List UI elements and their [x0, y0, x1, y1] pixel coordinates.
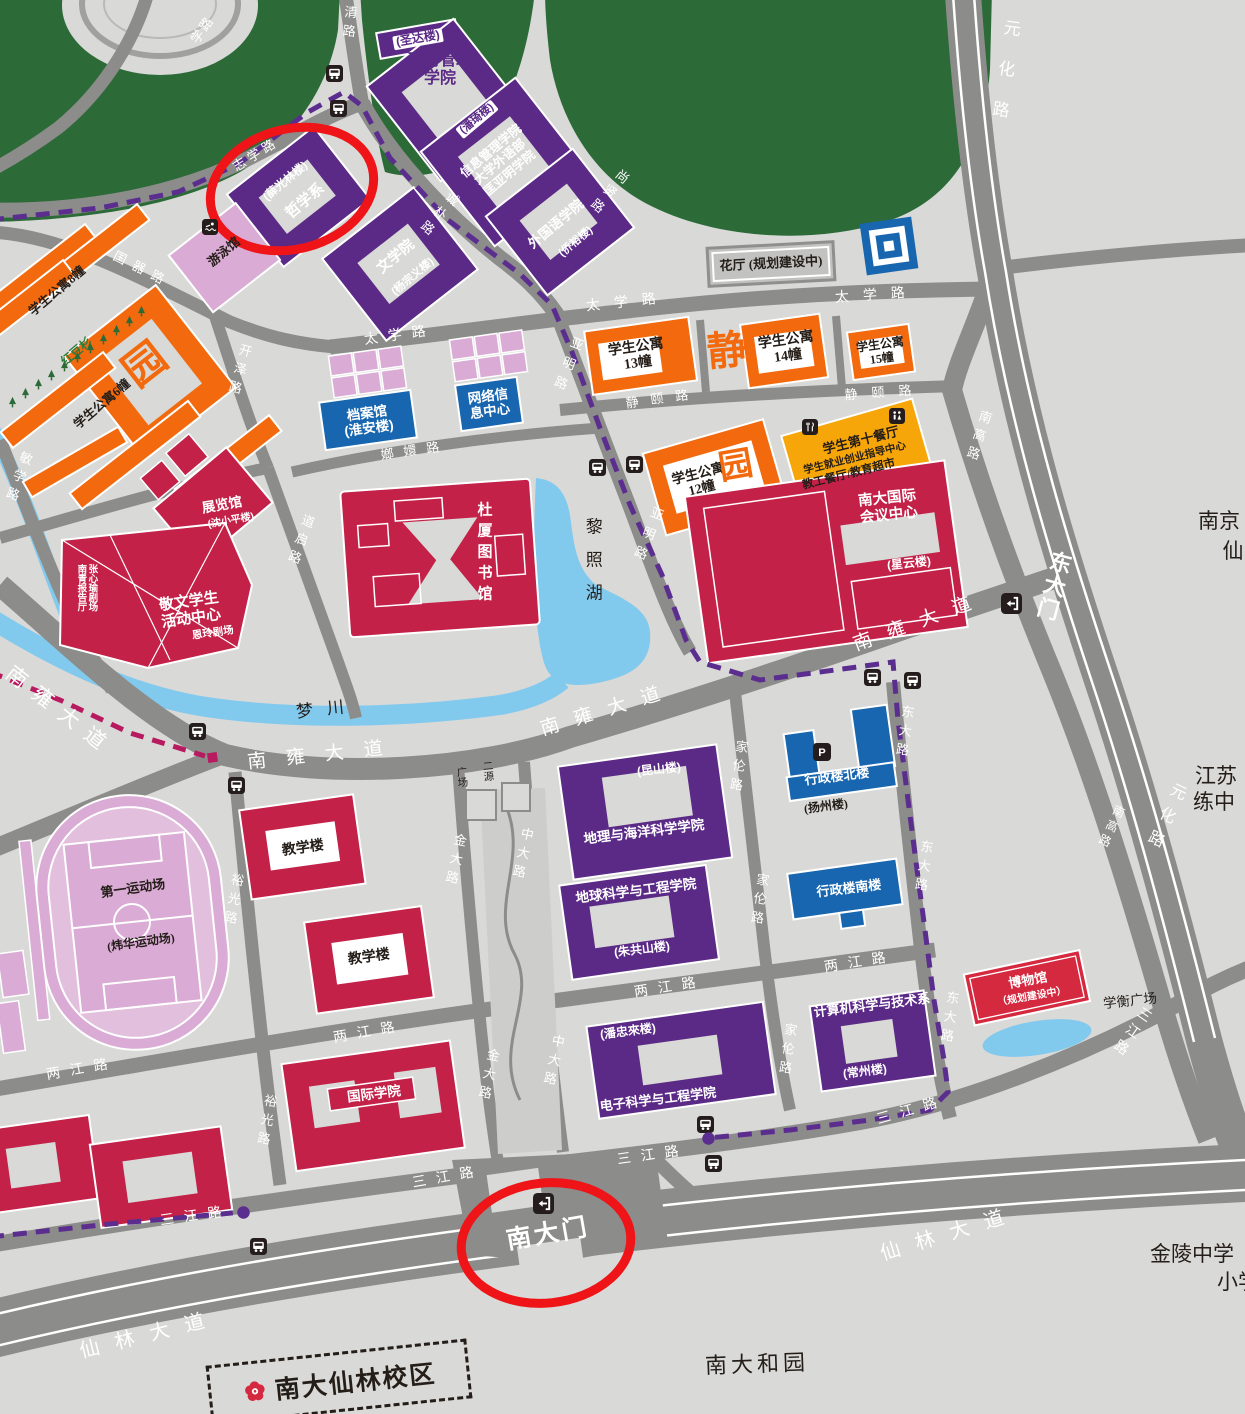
- geography-building: [558, 744, 732, 879]
- classroom-1-building: [239, 794, 365, 899]
- classroom-2-building: [304, 906, 434, 1014]
- plaza-block-1: [466, 790, 496, 820]
- museum-building: [964, 950, 1090, 1025]
- electronic-science-building: [586, 1002, 775, 1119]
- road-dorm-alley-2: [836, 316, 842, 388]
- earth-science-building: [559, 865, 719, 980]
- dorm-13-building: [584, 317, 697, 395]
- computer-science-building: [810, 990, 936, 1091]
- nju-logo-icon: [241, 1376, 271, 1406]
- blue-square-building: [860, 217, 919, 276]
- admin-south-building: [787, 859, 905, 936]
- southwest-buildings: [0, 1115, 232, 1228]
- dorm-15-building: [847, 324, 915, 380]
- campus-name-label: 南大仙林校区: [273, 1354, 438, 1407]
- admin-north-building: [779, 705, 898, 801]
- huating-planned-box: [707, 242, 835, 287]
- basketball-courts-west: [328, 346, 406, 398]
- jingwen-center-building: [60, 523, 252, 668]
- conference-center-building: [685, 460, 968, 663]
- campus-map: P 元化路元化路太学路太学路太学路静颐路静颐路南高路南高路亚明路亚明路嫏嬛路国器…: [0, 0, 1245, 1414]
- plaza-block-2: [502, 783, 530, 811]
- library-building: [340, 479, 540, 638]
- dorm-14-building: [740, 314, 828, 389]
- west-edge-courts: [0, 950, 29, 1053]
- map-canvas: P: [0, 0, 1245, 1414]
- archives-building: [319, 390, 417, 450]
- international-college-building: [281, 1041, 464, 1172]
- road-xueqing-lu: [344, 0, 362, 103]
- network-center-building: [455, 377, 523, 431]
- road-taixue-east-ext: [1000, 245, 1245, 268]
- basketball-courts-east: [449, 330, 527, 382]
- road-dorm-alley-1: [700, 320, 706, 392]
